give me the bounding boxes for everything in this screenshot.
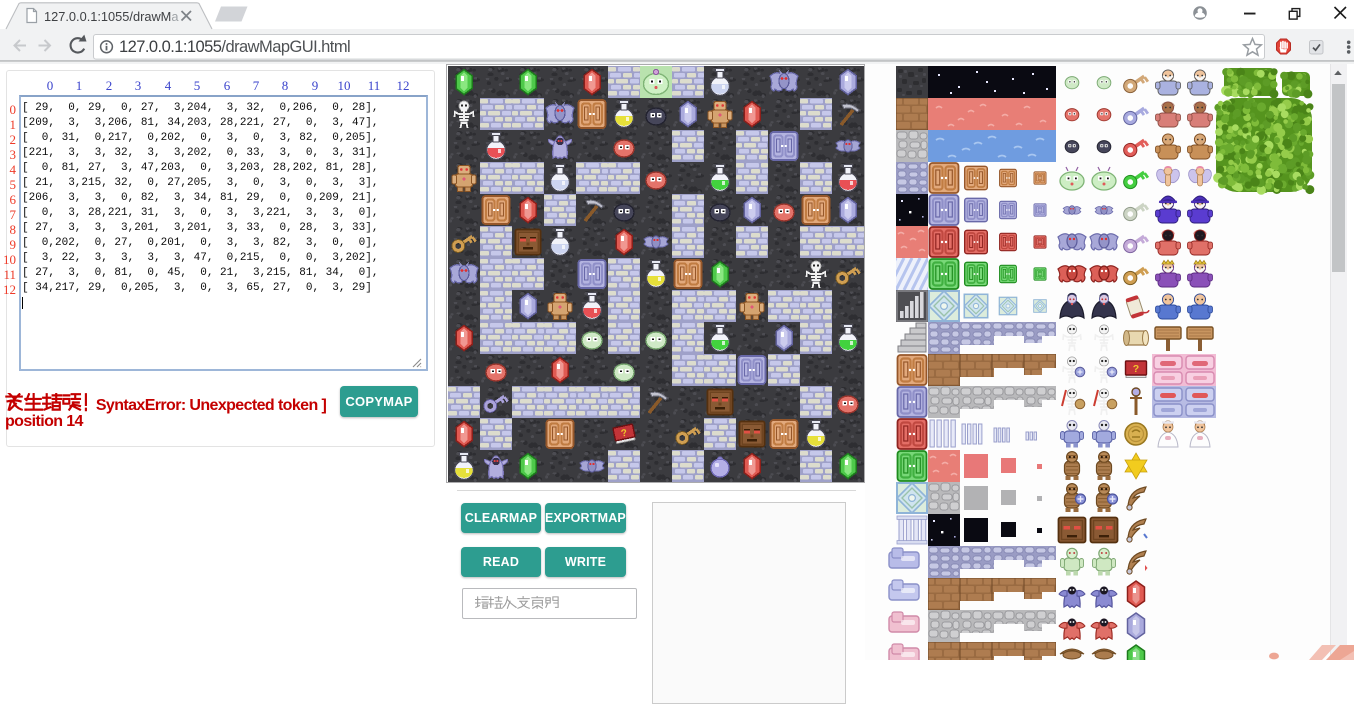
svg-text:127.0.0.1:1055/drawMapGUI.html: 127.0.0.1:1055/drawMapGUI.html xyxy=(119,38,350,56)
svg-text:127.0.0.1:1055/drawMa: 127.0.0.1:1055/drawMa xyxy=(44,9,179,24)
